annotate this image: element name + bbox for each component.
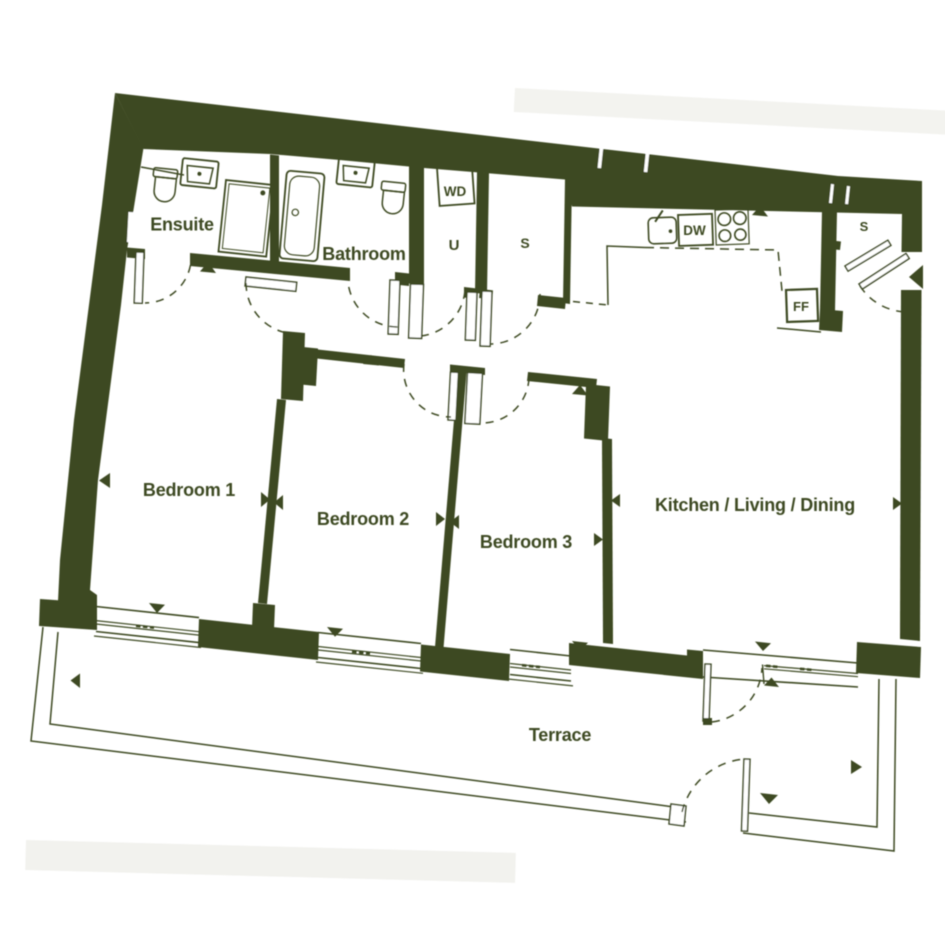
svg-text:WD: WD bbox=[444, 184, 467, 199]
svg-text:S: S bbox=[860, 219, 869, 234]
svg-text:DW: DW bbox=[683, 223, 706, 238]
svg-text:Bedroom 1: Bedroom 1 bbox=[143, 480, 235, 500]
svg-text:Bathroom: Bathroom bbox=[322, 244, 405, 264]
svg-text:Kitchen / Living / Dining: Kitchen / Living / Dining bbox=[655, 495, 855, 515]
svg-text:Ensuite: Ensuite bbox=[150, 215, 214, 235]
svg-text:S: S bbox=[520, 235, 529, 251]
svg-text:Terrace: Terrace bbox=[529, 725, 592, 745]
svg-text:FF: FF bbox=[793, 299, 809, 314]
svg-text:Bedroom 2: Bedroom 2 bbox=[317, 509, 409, 529]
svg-text:U: U bbox=[449, 237, 460, 254]
svg-text:Bedroom 3: Bedroom 3 bbox=[480, 532, 572, 552]
